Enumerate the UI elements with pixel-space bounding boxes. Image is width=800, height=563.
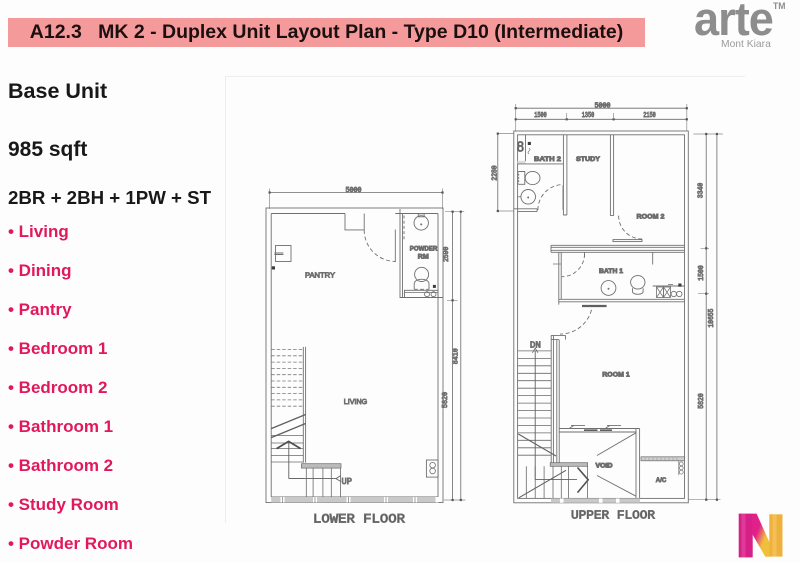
- svg-text:5820: 5820: [698, 393, 706, 409]
- svg-text:ROOM 2: ROOM 2: [637, 213, 665, 220]
- svg-text:PANTRY: PANTRY: [305, 271, 335, 280]
- svg-text:DN: DN: [530, 340, 541, 350]
- svg-text:LIVING: LIVING: [344, 397, 368, 406]
- svg-text:STUDY: STUDY: [576, 156, 600, 163]
- svg-text:2280: 2280: [492, 165, 500, 180]
- svg-text:ROOM 1: ROOM 1: [602, 371, 630, 378]
- svg-text:8: 8: [517, 139, 524, 155]
- svg-text:UPPER FLOOR: UPPER FLOOR: [571, 509, 655, 523]
- svg-text:RM: RM: [418, 253, 429, 260]
- svg-text:POWDER: POWDER: [410, 246, 438, 253]
- svg-text:BATH 1: BATH 1: [599, 268, 623, 275]
- svg-text:1500: 1500: [534, 112, 547, 120]
- svg-text:A/C: A/C: [656, 477, 667, 484]
- svg-text:3340: 3340: [697, 183, 705, 199]
- svg-text:10655: 10655: [708, 309, 716, 328]
- svg-text:2590: 2590: [443, 247, 451, 262]
- svg-text:5000: 5000: [595, 103, 611, 111]
- svg-text:2150: 2150: [643, 112, 656, 120]
- svg-text:LOWER FLOOR: LOWER FLOOR: [313, 512, 405, 527]
- svg-text:5000: 5000: [346, 187, 362, 195]
- svg-text:VOID: VOID: [596, 464, 614, 470]
- svg-text:1500: 1500: [698, 265, 706, 281]
- svg-text:5820: 5820: [442, 392, 450, 408]
- svg-text:8410: 8410: [453, 348, 461, 364]
- svg-text:BATH 2: BATH 2: [534, 156, 561, 163]
- svg-text:1350: 1350: [582, 112, 595, 120]
- svg-text:UP: UP: [342, 477, 353, 487]
